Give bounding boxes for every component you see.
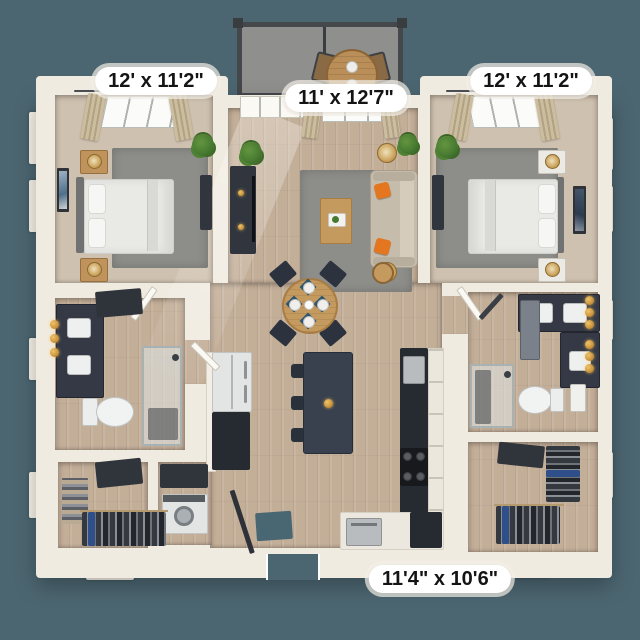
balcony-post <box>233 18 243 28</box>
plate <box>303 316 315 328</box>
plate <box>289 299 301 311</box>
bedroom-right-media-console <box>432 175 444 230</box>
bathroom-cabinet <box>95 288 143 318</box>
throw-pillow <box>373 181 391 199</box>
shower-head <box>172 354 179 361</box>
closet-shelf-top <box>95 458 143 489</box>
sink-basin <box>563 303 587 323</box>
plate <box>317 299 329 311</box>
console-knob <box>238 224 244 230</box>
stove-burner <box>403 472 412 481</box>
bed <box>468 179 558 254</box>
kitchen-sink <box>403 356 425 384</box>
tv-console <box>230 166 256 254</box>
washer-control-strip <box>163 495 205 502</box>
kitchen-island <box>303 352 353 454</box>
linen-cabinet <box>520 300 540 360</box>
closet-rod <box>494 504 564 506</box>
tv-screen <box>252 176 255 242</box>
stove <box>400 448 428 486</box>
sconce-light <box>50 320 59 329</box>
fridge-handle <box>244 361 247 379</box>
dimension-label-bedroom-left: 12' x 11'2" <box>95 67 217 95</box>
toilet-tank <box>550 388 564 412</box>
balcony-post <box>397 18 407 28</box>
bed-headboard <box>76 177 84 253</box>
stove-burner <box>403 452 412 461</box>
art-canvas <box>575 189 584 231</box>
island-faucet <box>324 399 333 408</box>
dimension-label-living-room: 11' x 12'7" <box>285 84 407 112</box>
plate <box>303 282 315 294</box>
vanity <box>56 304 104 398</box>
stove-burner <box>416 452 425 461</box>
side-table <box>372 262 394 284</box>
potted-plant <box>398 134 418 154</box>
pillow <box>538 184 556 214</box>
table-setting <box>346 61 358 73</box>
closet-rod <box>80 510 168 512</box>
sconce-light <box>585 320 594 329</box>
shower-floor <box>148 408 178 440</box>
coffee-table <box>320 198 352 244</box>
blue-garment <box>502 506 509 544</box>
bedroom-left-media-console <box>200 175 212 230</box>
duvet-fold <box>147 180 158 251</box>
sconce-light <box>585 364 594 373</box>
toilet-bowl <box>96 397 134 427</box>
pillow <box>88 218 106 248</box>
dimension-label-bottom-room: 11'4" x 10'6" <box>369 565 511 593</box>
washer <box>162 494 208 534</box>
art-canvas <box>59 171 67 209</box>
tray-plant <box>332 216 339 223</box>
shower <box>142 346 182 446</box>
sink-basin <box>67 355 91 375</box>
throw-pillow <box>373 237 391 255</box>
shower-head <box>504 371 511 378</box>
table-lamp <box>87 262 102 277</box>
closet-shelf-top <box>497 442 545 469</box>
sofa-armrest <box>373 172 415 181</box>
sconce-light <box>50 334 59 343</box>
art-frame <box>573 186 586 234</box>
table-lamp <box>545 262 560 277</box>
dishwasher <box>346 518 382 546</box>
dishwasher-handle <box>351 523 377 526</box>
sconce-light <box>50 348 59 357</box>
duvet-fold <box>485 180 496 251</box>
potted-plant <box>192 134 214 156</box>
sconce-light <box>585 352 594 361</box>
dimension-label-bedroom-right: 12' x 11'2" <box>470 67 592 95</box>
entry-threshold <box>266 554 320 580</box>
table-lamp <box>87 154 102 169</box>
refrigerator <box>212 352 252 412</box>
centerpiece <box>304 300 314 310</box>
pillow <box>88 184 106 214</box>
sink-basin <box>67 318 91 338</box>
fridge-handle <box>244 385 247 403</box>
toilet-bowl <box>518 386 552 414</box>
shower <box>470 364 514 428</box>
kitchen-counter-left <box>212 412 250 470</box>
sconce-light <box>585 308 594 317</box>
floor-plan-canvas: 12' x 11'2" 11' x 12'7" 12' x 11'2" 11'4… <box>0 0 640 640</box>
blue-garment <box>88 512 95 546</box>
sofa <box>370 170 418 268</box>
potted-plant <box>240 142 262 164</box>
sconce-light <box>585 296 594 305</box>
washer-door <box>174 506 194 526</box>
vanity-side <box>560 332 600 388</box>
stove-burner <box>416 472 425 481</box>
art-frame <box>57 168 69 212</box>
table-lamp <box>545 154 560 169</box>
entry-mat <box>255 511 293 541</box>
sconce-light <box>585 340 594 349</box>
towel-rack <box>570 384 586 412</box>
console-knob <box>238 190 244 196</box>
bed <box>84 179 174 254</box>
kitchen-counter-corner <box>410 512 442 548</box>
pillow <box>538 218 556 248</box>
floor-lamp <box>377 143 397 163</box>
sofa-back <box>400 175 414 263</box>
shower-floor <box>475 370 491 424</box>
blue-garment <box>546 470 580 477</box>
potted-plant <box>436 136 458 158</box>
laundry-shelf <box>160 464 208 488</box>
fridge-door-split <box>231 355 233 409</box>
